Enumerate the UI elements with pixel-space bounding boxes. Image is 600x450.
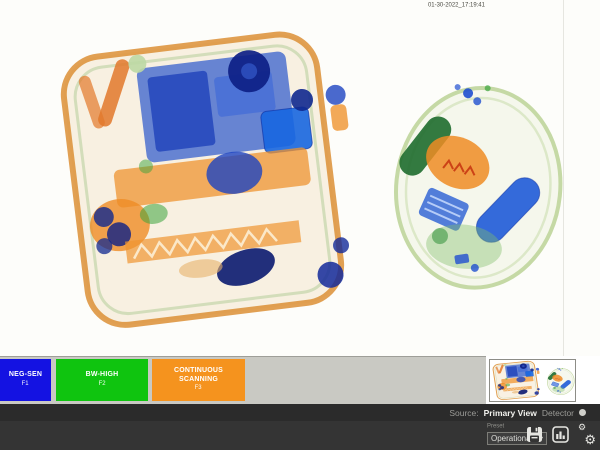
canvas-divider [563, 0, 564, 357]
bw-high-label: BW-HIGH [86, 371, 119, 380]
statistics-button[interactable] [552, 426, 569, 443]
detector-label[interactable]: Detector [542, 408, 574, 418]
source-value: Primary View [484, 408, 537, 418]
scan-thumbnail[interactable] [489, 359, 576, 402]
status-bar: Source: Primary View Detector [0, 404, 600, 421]
scan-thumbnail-image [490, 360, 575, 401]
thumbnail-panel [486, 356, 600, 404]
continuous-scanning-fkey: F3 [195, 385, 202, 392]
gear-icon: ⚙ [584, 433, 596, 446]
source-label: Source: [449, 408, 478, 418]
settings-button[interactable]: ⚙ ⚙ [578, 426, 595, 443]
bag-xray [382, 76, 570, 295]
gear-icon: ⚙ [578, 423, 586, 432]
xray-scanner-app: 01-30-2022_17:19:41 NEG-SEN F1 BW-HIGH F… [0, 0, 600, 450]
neg-sen-button[interactable]: NEG-SEN F1 [0, 359, 51, 401]
neg-sen-fkey: F1 [22, 381, 29, 388]
capture-timestamp: 01-30-2022_17:19:41 [428, 2, 485, 8]
xray-image [0, 0, 600, 357]
suitcase-xray [59, 27, 370, 329]
scan-view: 01-30-2022_17:19:41 [0, 0, 600, 357]
toolbar-icon-row: ⚙ ⚙ [526, 426, 595, 443]
bw-high-fkey: F2 [99, 381, 106, 388]
bw-high-button[interactable]: BW-HIGH F2 [56, 359, 148, 401]
continuous-scanning-button[interactable]: CONTINUOUS SCANNING F3 [152, 359, 245, 401]
save-icon [526, 426, 543, 443]
continuous-scanning-label: CONTINUOUS SCANNING [158, 367, 239, 385]
save-button[interactable] [526, 426, 543, 443]
detector-status-icon [579, 409, 586, 416]
neg-sen-label: NEG-SEN [9, 371, 42, 380]
bar-chart-icon [552, 426, 569, 443]
bottom-panel: Preset Operational ▾ [0, 421, 600, 450]
